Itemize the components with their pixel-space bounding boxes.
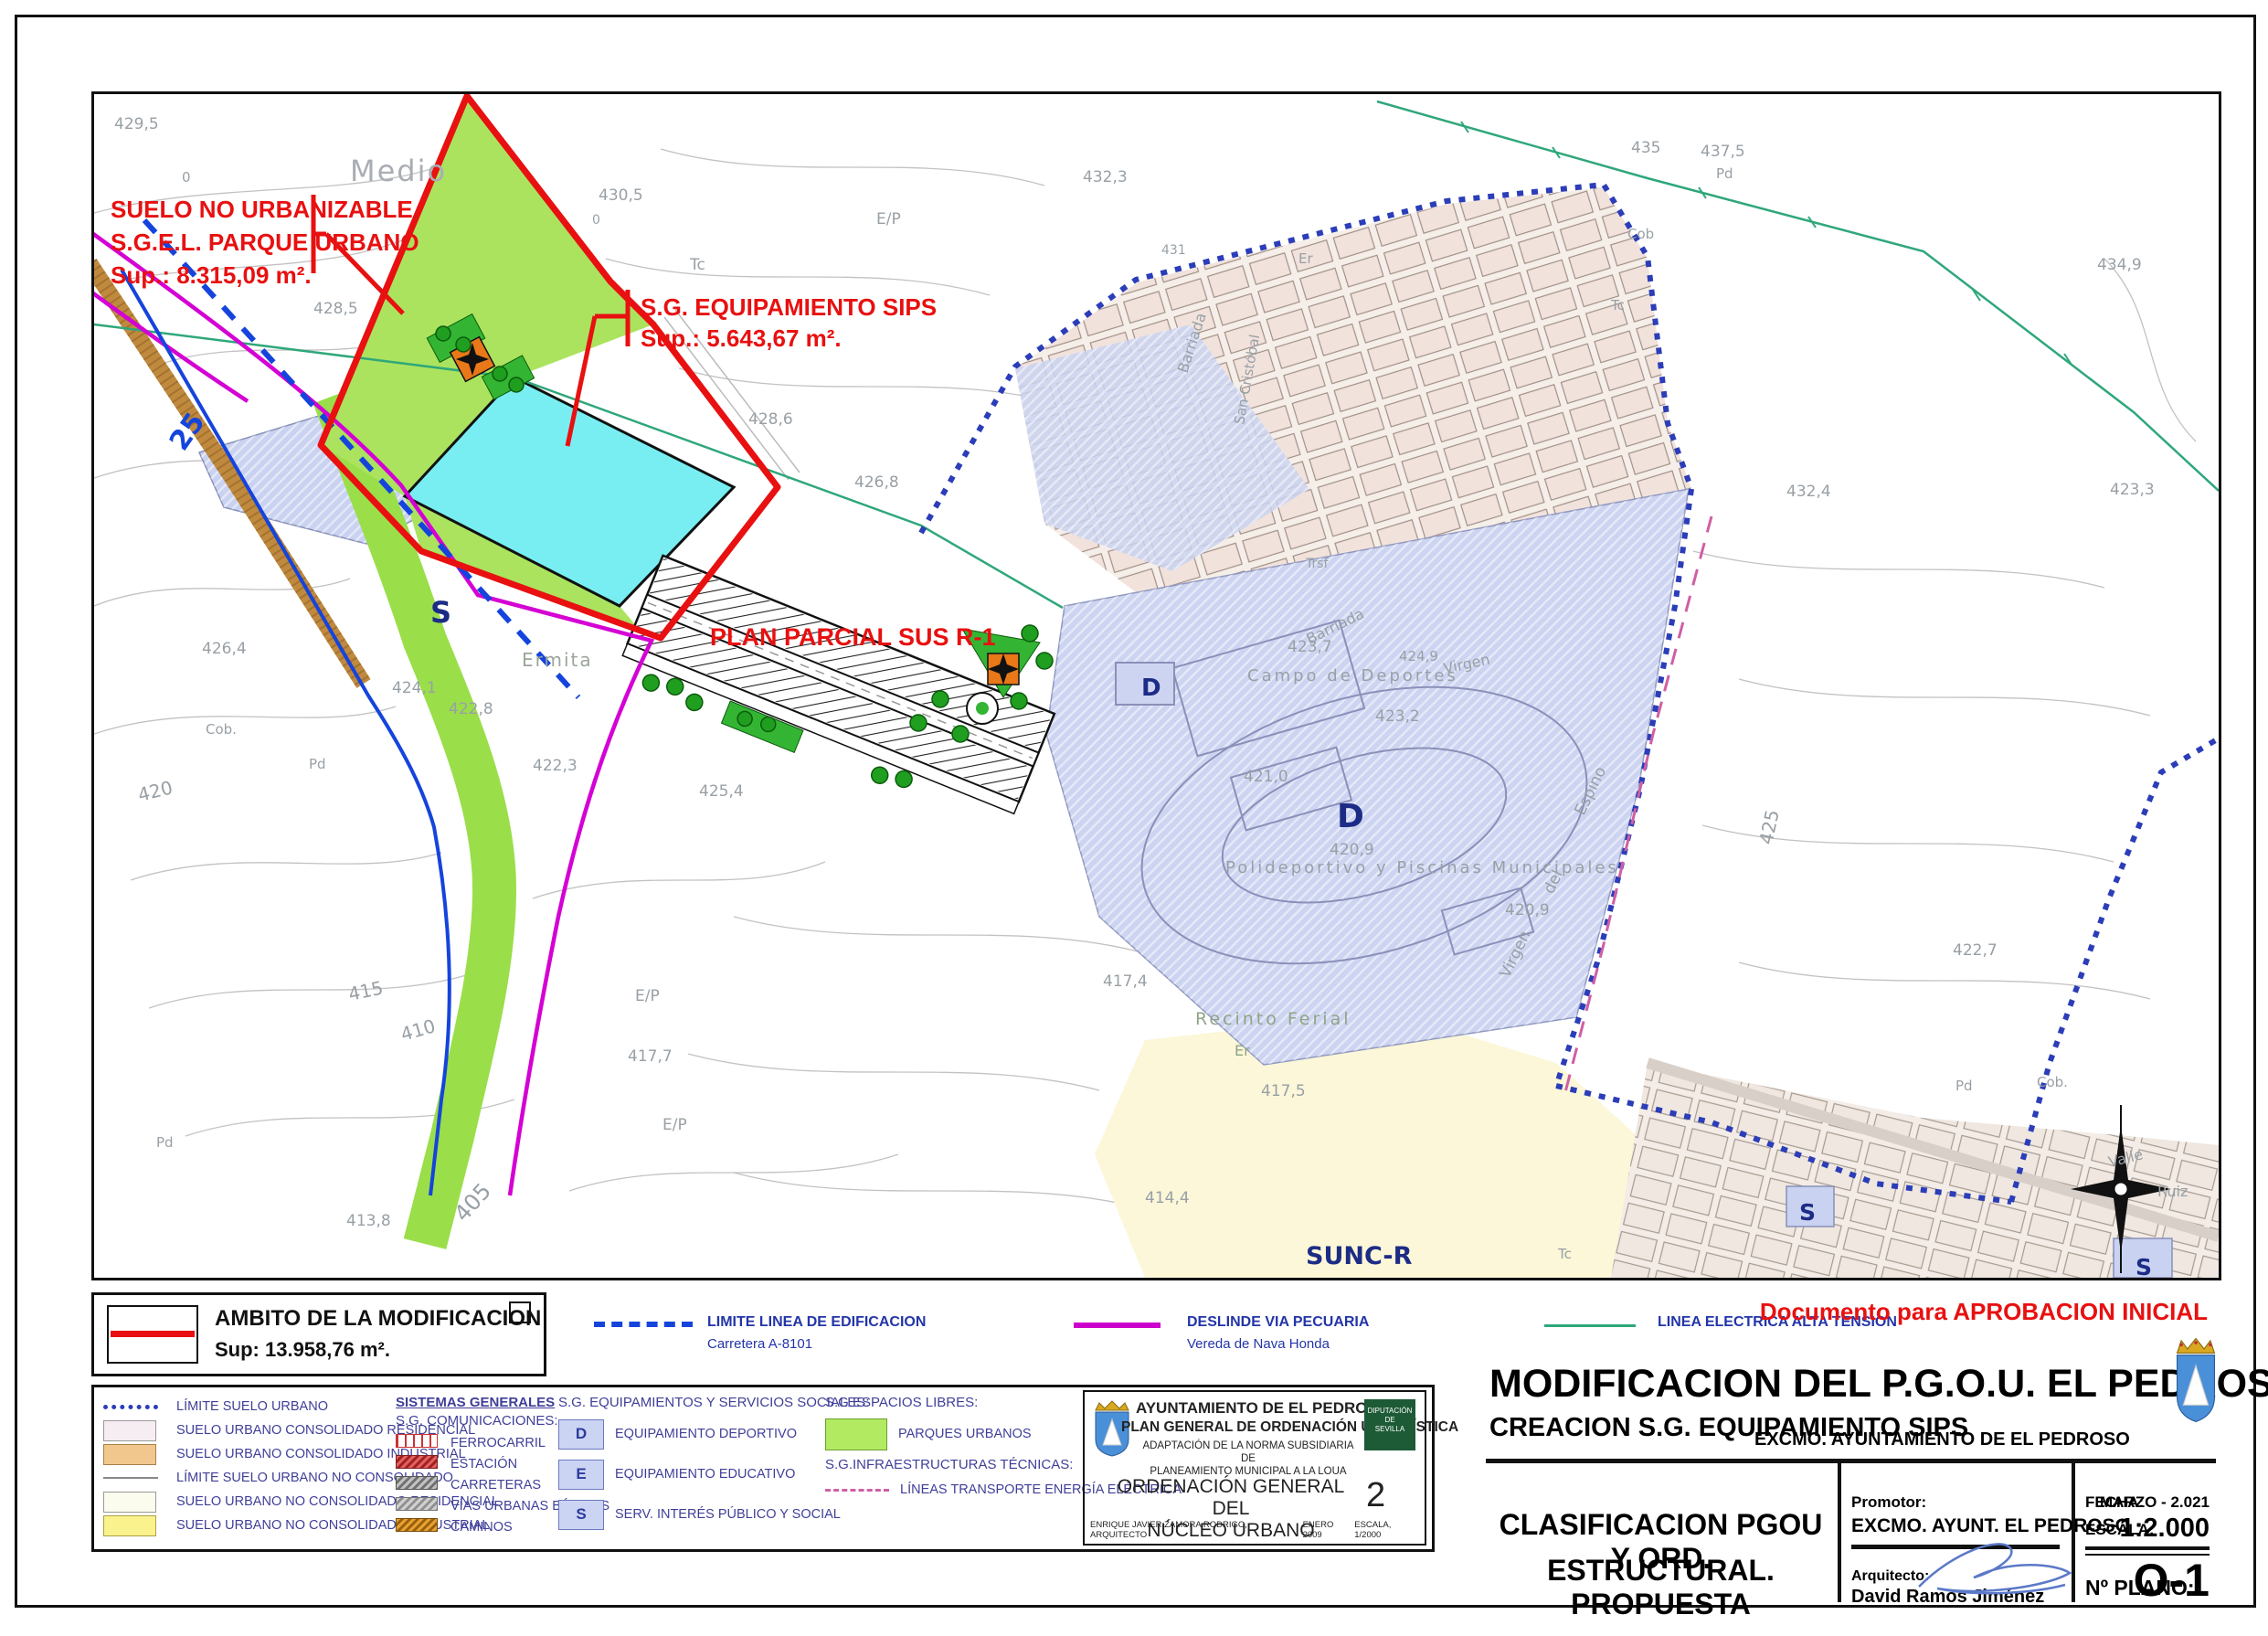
map-label: S xyxy=(2136,1254,2152,1278)
map-label: Pd xyxy=(1716,165,1733,182)
map-label: Er xyxy=(1298,250,1313,267)
map-label: 423,2 xyxy=(1375,707,1420,726)
diputacion-text: DIPUTACIÓN xyxy=(1368,1407,1413,1415)
fecha-value: MARZO - 2.021 xyxy=(2100,1493,2210,1512)
ambito-swatch xyxy=(107,1305,198,1364)
ambito-sup: Sup: 13.958,76 m². xyxy=(215,1338,390,1362)
map-label: 426,4 xyxy=(202,640,247,658)
map-label: 434,9 xyxy=(2097,256,2142,274)
legend-item-label: CAMINOS xyxy=(447,1520,513,1535)
map-label: Tc xyxy=(1610,297,1625,313)
map-label: 423,3 xyxy=(2110,481,2155,499)
plan-sheet: 429,50Medio430,50E/PTc432,3431Er435437,5… xyxy=(0,0,2268,1636)
map-label: E/P xyxy=(876,210,901,228)
annotation-sips-line1: S.G. EQUIPAMIENTO SIPS xyxy=(641,292,937,323)
map-label: Recinto Ferial xyxy=(1195,1009,1351,1029)
map-label: Campo de Deportes xyxy=(1247,666,1458,685)
map-label: 422,7 xyxy=(1953,941,1998,960)
stamp-sheet-number: 2 xyxy=(1366,1476,1385,1515)
dashed-blue-line-swatch xyxy=(594,1322,693,1327)
energia-line-swatch xyxy=(825,1489,889,1492)
map-label: 424,9 xyxy=(1399,648,1438,664)
plan-name-line2: ESTRUCTURAL. PROPUESTA xyxy=(1489,1554,1832,1621)
map-label: 417,4 xyxy=(1103,972,1148,991)
map-label: 410 xyxy=(398,1015,438,1046)
ferrocarril-swatch xyxy=(396,1434,438,1448)
map-label: Ruiz xyxy=(2157,1183,2188,1200)
diputacion-text: DE xyxy=(1384,1416,1394,1424)
escala-value: 1:2.000 xyxy=(2120,1514,2210,1544)
stamp-plan: PLAN GENERAL DE ORDENACIÓN URBANÍSTICA xyxy=(1121,1419,1377,1436)
stamp-sheet-title1: ORDENACIÓN GENERAL DEL xyxy=(1118,1476,1345,1519)
legend-item-label: FERROCARRIL xyxy=(447,1436,546,1450)
legend-line-sublabel: Vereda de Nava Honda xyxy=(1187,1336,1330,1352)
dotted-line-swatch xyxy=(103,1405,158,1409)
diputacion-text: SEVILLA xyxy=(1375,1425,1404,1433)
no-consolidado-residencial-swatch xyxy=(103,1492,156,1513)
sheet-org: EXCMO. AYUNTAMIENTO DE EL PEDROSO xyxy=(1754,1429,2130,1450)
legend-item-label: PARQUES URBANOS xyxy=(887,1427,1032,1441)
stamp-author: ENRIQUE JAVIER ZAMORA RODRIGO, ARQUITECT… xyxy=(1090,1520,1303,1540)
legend-col-equipamientos: S.G. EQUIPAMIENTOS Y SERVICIOS SOCIALES:… xyxy=(558,1395,869,1535)
annotation-parque-line3: Sup.: 8.315,09 m². xyxy=(111,259,419,292)
map-label: E/P xyxy=(635,987,660,1005)
map-label: 417,7 xyxy=(628,1047,673,1066)
map-label: 425,4 xyxy=(699,782,744,801)
residencial-swatch xyxy=(103,1420,156,1441)
map-label: 426,8 xyxy=(854,473,899,492)
legend-line-label: LIMITE LINEA DE EDIFICACION xyxy=(707,1314,926,1331)
legend-item-label: LÍMITE SUELO URBANO xyxy=(169,1399,328,1414)
stamp-sub1: ADAPTACIÓN DE LA NORMA SUBSIDIARIA DE xyxy=(1142,1440,1353,1464)
annotation-parque-line2: S.G.E.L. PARQUE URBANO xyxy=(111,226,419,259)
map-label: E/P xyxy=(662,1116,687,1134)
annotation-plan-parcial: PLAN PARCIAL SUS R-1 xyxy=(710,621,996,653)
map-label: Pd xyxy=(309,756,326,772)
carreteras-swatch xyxy=(396,1476,438,1490)
map-label: 435 xyxy=(1631,139,1660,157)
map-label: SUNC-R xyxy=(1306,1242,1413,1270)
map-canvas: 429,50Medio430,50E/PTc432,3431Er435437,5… xyxy=(91,91,2221,1280)
ambito-corner-square xyxy=(509,1301,531,1323)
map-label: 432,3 xyxy=(1083,168,1128,186)
map-label: 420 xyxy=(135,776,175,806)
map-label: 414,4 xyxy=(1145,1189,1190,1207)
caminos-swatch xyxy=(396,1518,438,1532)
map-label: 425 xyxy=(1754,808,1783,846)
map-label: 428,5 xyxy=(313,300,358,318)
zone-town-southeast xyxy=(1611,1063,2219,1278)
map-label: 422,3 xyxy=(533,757,578,775)
map-label: 421,0 xyxy=(1244,768,1288,786)
escala-divider xyxy=(2085,1546,2210,1550)
estacion-swatch xyxy=(396,1455,438,1469)
stamp-box: AYUNTAMIENTO DE EL PEDROSO PLAN GENERAL … xyxy=(1083,1390,1426,1546)
promotor-label: Promotor: xyxy=(1851,1493,1926,1512)
annotation-parque: SUELO NO URBANIZABLE S.G.E.L. PARQUE URB… xyxy=(111,193,419,292)
titleblock-rule xyxy=(1486,1459,2216,1463)
plano-value: O-1 xyxy=(2134,1554,2210,1607)
legend-item-label: EQUIPAMIENTO EDUCATIVO xyxy=(604,1467,795,1482)
map-label: 429,5 xyxy=(114,115,159,133)
map-label: 432,4 xyxy=(1786,483,1831,501)
map-label: 437,5 xyxy=(1701,143,1745,161)
map-label: Trsf xyxy=(1305,557,1330,571)
map-label: Pd xyxy=(1955,1078,1973,1094)
industrial-swatch xyxy=(103,1444,156,1465)
map-label: Cob xyxy=(1627,226,1654,242)
stamp-date: ENERO 2009 xyxy=(1303,1520,1355,1540)
legend-item-label: EQUIPAMIENTO DEPORTIVO xyxy=(604,1427,797,1441)
titleblock-divider xyxy=(1838,1463,1841,1602)
ambito-title: AMBITO DE LA MODIFICACION xyxy=(215,1306,541,1332)
map-label: Tc xyxy=(1557,1246,1572,1262)
legend-item-label: CARRETERAS xyxy=(447,1478,541,1493)
zone-sunc-r xyxy=(1095,1013,1648,1278)
annotation-parque-line1: SUELO NO URBANIZABLE xyxy=(111,193,419,226)
map-label: 0 xyxy=(182,169,191,186)
stamp-org: AYUNTAMIENTO DE EL PEDROSO xyxy=(1136,1399,1361,1418)
map-label: S xyxy=(430,595,451,630)
map-label: 417,5 xyxy=(1261,1082,1306,1100)
legend-item-label: SERV. INTERÉS PÚBLICO Y SOCIAL xyxy=(604,1507,841,1522)
no-consolidado-industrial-swatch xyxy=(103,1515,156,1536)
legend-line-sublabel: Carretera A-8101 xyxy=(707,1336,812,1352)
map-label: 428,6 xyxy=(748,410,793,429)
map-label: Cob. xyxy=(206,721,237,738)
map-label: Er xyxy=(1235,1042,1250,1059)
legend-item-label: ESTACIÓN xyxy=(447,1457,517,1471)
map-label: 424,1 xyxy=(392,679,437,697)
pedroso-shield-icon-large xyxy=(2173,1336,2219,1424)
vias-urbanas-swatch xyxy=(396,1497,438,1511)
map-label: D xyxy=(1337,798,1364,835)
diputacion-sevilla-logo: DIPUTACIÓN DE SEVILLA xyxy=(1364,1399,1415,1450)
map-label: 422,8 xyxy=(449,700,493,718)
parques-urbanos-swatch xyxy=(825,1418,887,1450)
map-label: 420,9 xyxy=(1330,841,1374,859)
equipamiento-d-box: D xyxy=(558,1419,604,1450)
map-label: Tc xyxy=(689,256,705,274)
thin-line-swatch xyxy=(103,1477,158,1479)
map-label: Cob. xyxy=(2037,1074,2068,1090)
equipamiento-s-box: S xyxy=(558,1500,604,1530)
equipamiento-e-box: E xyxy=(558,1460,604,1490)
legend-line-label: DESLINDE VIA PECUARIA xyxy=(1187,1314,1369,1331)
stamp-scale: ESCALA, 1/2000 xyxy=(1354,1520,1419,1540)
map-label: Medio xyxy=(350,154,447,188)
map-label: 415 xyxy=(346,976,385,1004)
green-line-swatch xyxy=(1544,1324,1636,1327)
architect-signature xyxy=(1901,1532,2083,1605)
map-label: Pd xyxy=(156,1134,174,1151)
annotation-sips: S.G. EQUIPAMIENTO SIPS Sup.: 5.643,67 m²… xyxy=(641,292,937,354)
map-label: 430,5 xyxy=(599,186,643,205)
annotation-sips-line2: Sup.: 5.643,67 m². xyxy=(641,323,937,354)
document-status: Documento para APROBACION INICIAL xyxy=(1760,1298,2208,1326)
map-label: 420,9 xyxy=(1505,901,1550,919)
map-label: 431 xyxy=(1161,243,1186,258)
sheet-title: MODIFICACION DEL P.G.O.U. EL PEDROSO xyxy=(1489,1362,2268,1407)
map-label: S xyxy=(1799,1199,1816,1226)
map-label: 0 xyxy=(592,213,600,228)
map-label: D xyxy=(1141,675,1161,702)
legend-ambito-box: AMBITO DE LA MODIFICACION Sup: 13.958,76… xyxy=(91,1292,546,1376)
map-label: Ermita xyxy=(522,649,593,671)
magenta-line-swatch xyxy=(1074,1323,1160,1328)
map-label: 413,8 xyxy=(346,1212,391,1230)
equipamientos-title: S.G. EQUIPAMIENTOS Y SERVICIOS SOCIALES: xyxy=(558,1395,869,1410)
master-legend: LÍMITE SUELO URBANO SUELO URBANO CONSOLI… xyxy=(91,1385,1435,1552)
